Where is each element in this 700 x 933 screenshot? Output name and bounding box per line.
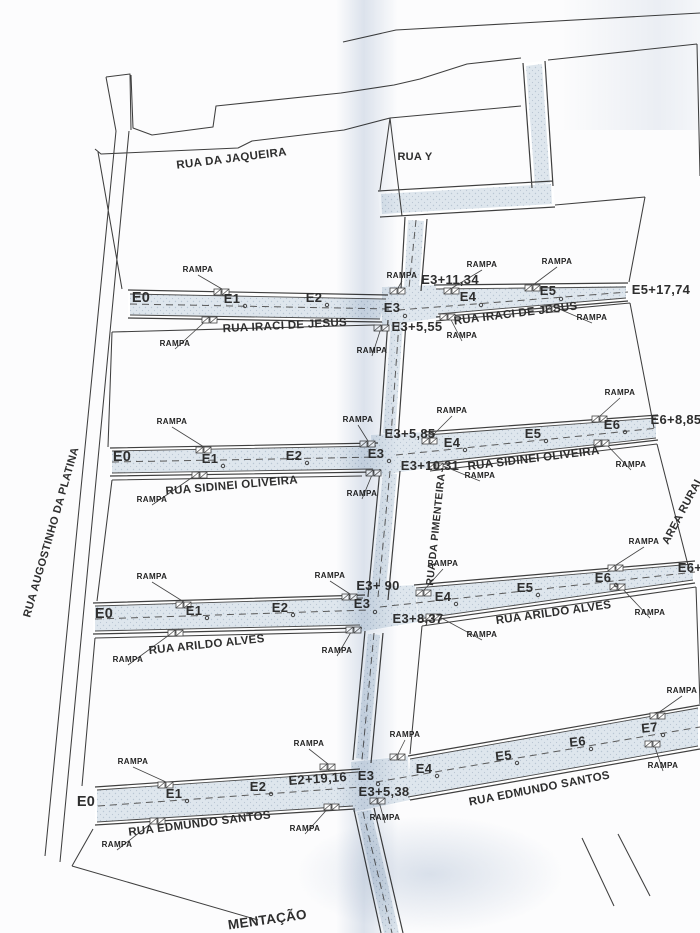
label-r2-e1: E1 — [202, 451, 219, 466]
label-r3-e3p8-37: E3+8,37 — [393, 611, 444, 626]
label-r4-e5: E5 — [495, 747, 513, 764]
label-r2-e0: E0 — [113, 449, 131, 465]
rampa-label: RAMPA — [437, 406, 468, 415]
label-r1-e5: E5 — [540, 283, 557, 298]
rampa-label: RAMPA — [577, 313, 608, 322]
rampa-label: RAMPA — [605, 388, 636, 397]
rampa-leader-line — [133, 767, 166, 782]
label-r3-e2: E2 — [272, 600, 289, 615]
label-r2-e5: E5 — [525, 426, 542, 441]
rampa-label: RAMPA — [102, 840, 133, 849]
label-r1-e1: E1 — [224, 291, 241, 306]
rampa-label: RAMPA — [137, 495, 168, 504]
rampa-label: RAMPA — [648, 761, 679, 770]
rampa-leader-line — [198, 275, 222, 289]
rampa-label: RAMPA — [160, 339, 191, 348]
label-r4-e0: E0 — [77, 794, 95, 810]
label-rua-da-pimenteira: RUA DA PIMENTEIRA — [424, 473, 448, 587]
label-r1-e5p17-74: E5+17,74 — [632, 282, 691, 297]
rampa-label: RAMPA — [542, 257, 573, 266]
rampa-label: RAMPA — [616, 460, 647, 469]
label-r3-e5: E5 — [517, 580, 534, 595]
rampa-label: RAMPA — [629, 537, 660, 546]
rampa-label: RAMPA — [137, 572, 168, 581]
rampa-leader-line — [600, 398, 620, 416]
rampa-leader-line — [172, 427, 204, 447]
label-r4-e4: E4 — [416, 761, 433, 776]
label-r1-e3p11-34: E3+11,34 — [421, 272, 479, 287]
rampa-label: RAMPA — [667, 686, 698, 695]
label-r2-e3p10-31: E3+10,31 — [401, 458, 459, 473]
rampa-label: RAMPA — [157, 417, 188, 426]
scan-fold-shadow-top-right — [560, 0, 700, 130]
label-r1-e2: E2 — [306, 290, 323, 305]
label-r1-e4: E4 — [460, 289, 477, 304]
label-r4-e6: E6 — [569, 733, 587, 750]
rampa-label: RAMPA — [467, 630, 498, 639]
rampa-leader-line — [398, 740, 405, 754]
label-r3-e1: E1 — [186, 603, 203, 618]
label-r4-e1: E1 — [166, 786, 183, 801]
rampa-leader-line — [616, 547, 644, 565]
rampa-label: RAMPA — [635, 608, 666, 617]
rampa-label: RAMPA — [447, 331, 478, 340]
label-rua-augostinho-da-platina: RUA AUGOSTINHO DA PLATINA — [21, 446, 81, 619]
rampa-label: RAMPA — [113, 655, 144, 664]
scanned-plan-page: RAMPARAMPARAMPARAMPARAMPARAMPARAMPARAMPA… — [0, 0, 700, 933]
label-r2-e6p8-85: E6+8,85 — [651, 412, 700, 427]
scan-fold-shadow-vertical — [336, 0, 398, 933]
rampa-leader-line — [152, 582, 184, 602]
label-r1-e3p5-55: E3+5,55 — [392, 319, 443, 334]
label-r1-e0: E0 — [132, 290, 150, 306]
rampa-label: RAMPA — [183, 265, 214, 274]
rampa-leader-line — [309, 749, 328, 764]
label-r4-e7: E7 — [641, 719, 659, 736]
label-r2-e6: E6 — [604, 417, 621, 432]
label-r3-e0: E0 — [95, 606, 113, 622]
label-r3-e6: E6 — [595, 570, 612, 585]
label-r4-e2: E2 — [250, 779, 267, 794]
rampa-label: RAMPA — [118, 757, 149, 766]
scan-fold-shadow-bottom — [295, 815, 565, 933]
rampa-label: RAMPA — [294, 739, 325, 748]
label-r2-e2: E2 — [286, 448, 303, 463]
label-r2-e4: E4 — [444, 435, 461, 450]
label-r3-e6p: E6+ — [678, 560, 700, 575]
label-rua-y: RUA Y — [397, 151, 432, 163]
rampa-label: RAMPA — [467, 260, 498, 269]
label-r3-e4: E4 — [435, 589, 452, 604]
